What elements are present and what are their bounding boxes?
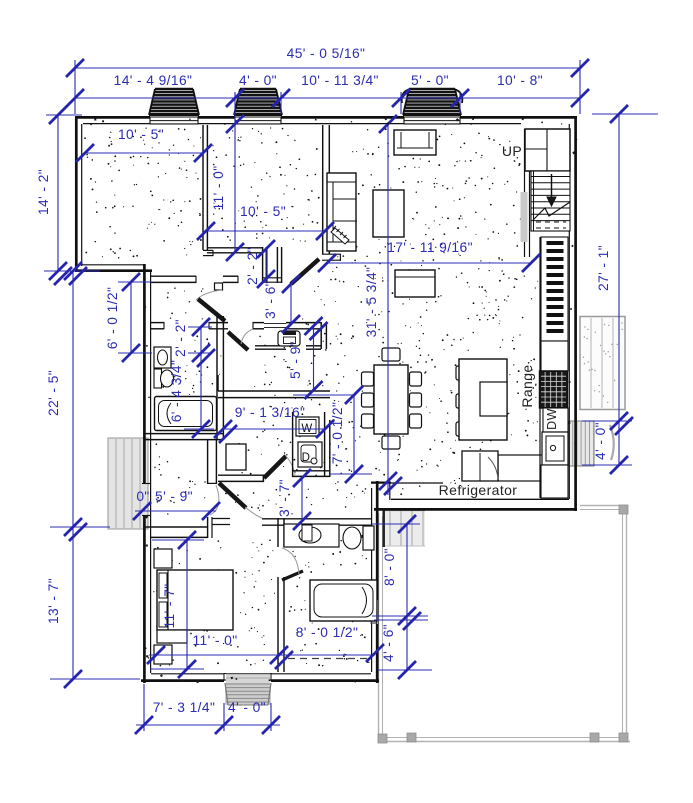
svg-text:14' - 2": 14' - 2" — [36, 169, 51, 215]
svg-text:45' - 0 5/16": 45' - 0 5/16" — [287, 46, 366, 61]
svg-text:13' - 7": 13' - 7" — [46, 578, 61, 624]
svg-text:0": 0" — [136, 489, 149, 504]
svg-text:5' - 0": 5' - 0" — [411, 73, 449, 88]
svg-text:5' - 9": 5' - 9" — [288, 341, 303, 379]
svg-text:5' - 9": 5' - 9" — [155, 489, 193, 504]
svg-text:UP: UP — [502, 143, 522, 159]
svg-text:8' - 0 1/2": 8' - 0 1/2" — [296, 625, 359, 640]
svg-text:10' - 5": 10' - 5" — [240, 204, 286, 219]
svg-text:Refrigerator: Refrigerator — [439, 482, 518, 498]
svg-text:2' - 2": 2' - 2" — [173, 319, 188, 357]
svg-text:4' - 0": 4' - 0" — [593, 422, 608, 460]
svg-text:3' - 7": 3' - 7" — [277, 479, 292, 517]
svg-text:9' - 1 3/16": 9' - 1 3/16" — [235, 405, 306, 420]
svg-text:6' - 0 1/2": 6' - 0 1/2" — [105, 287, 120, 350]
svg-text:7' - 0 1/2": 7' - 0 1/2" — [330, 402, 345, 465]
svg-text:14' - 4 9/16": 14' - 4 9/16" — [114, 73, 193, 88]
svg-text:11' - 0": 11' - 0" — [193, 633, 238, 648]
svg-text:8' - 0": 8' - 0" — [382, 548, 397, 586]
svg-text:4' - 6": 4' - 6" — [381, 624, 396, 662]
svg-text:11' - 0": 11' - 0" — [211, 166, 226, 211]
svg-text:17' - 11 9/16": 17' - 11 9/16" — [387, 240, 473, 255]
svg-text:10' - 5": 10' - 5" — [118, 127, 164, 142]
svg-text:DW: DW — [545, 408, 559, 430]
svg-text:3' - 6": 3' - 6" — [263, 281, 278, 319]
svg-text:10' - 8": 10' - 8" — [497, 73, 543, 88]
svg-text:22' - 5": 22' - 5" — [46, 370, 61, 416]
svg-text:27' - 1": 27' - 1" — [596, 245, 611, 291]
svg-text:11' - 7": 11' - 7" — [162, 584, 177, 629]
svg-text:D: D — [302, 452, 311, 464]
svg-text:31' - 5 3/4": 31' - 5 3/4" — [364, 267, 379, 338]
svg-text:7' - 3 1/4": 7' - 3 1/4" — [153, 700, 216, 715]
svg-text:2' - 2": 2' - 2" — [245, 247, 260, 285]
svg-text:Range: Range — [519, 364, 535, 407]
svg-text:10' - 11 3/4": 10' - 11 3/4" — [301, 73, 379, 88]
svg-text:4' - 0": 4' - 0" — [228, 700, 266, 715]
svg-text:6' - 4 3/4": 6' - 4 3/4" — [169, 360, 184, 423]
svg-text:4' - 0": 4' - 0" — [239, 73, 277, 88]
